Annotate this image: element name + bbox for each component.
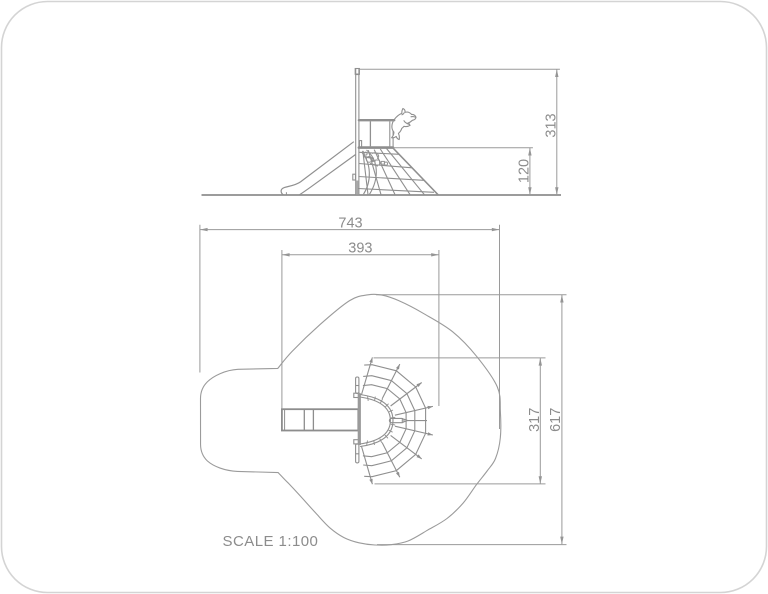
svg-text:393: 393: [348, 241, 372, 257]
svg-text:317: 317: [527, 408, 543, 432]
svg-text:SCALE 1:100: SCALE 1:100: [223, 533, 319, 550]
svg-text:120: 120: [517, 159, 533, 183]
svg-text:313: 313: [543, 113, 559, 137]
svg-text:617: 617: [548, 408, 564, 432]
svg-text:743: 743: [338, 215, 362, 231]
